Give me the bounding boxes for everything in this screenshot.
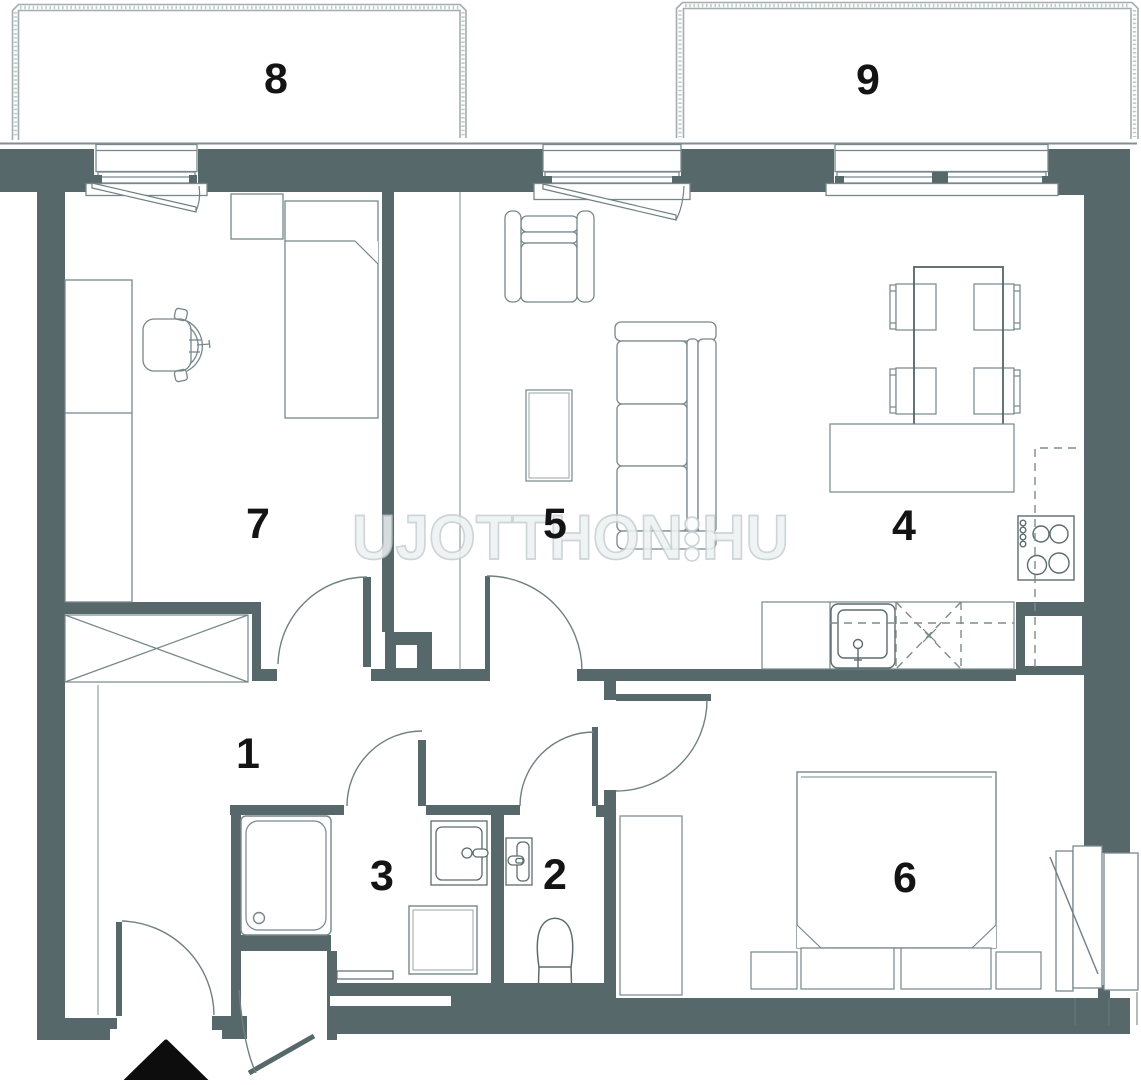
svg-text:6: 6 bbox=[893, 854, 917, 902]
svg-text:8: 8 bbox=[264, 55, 288, 103]
svg-text:9: 9 bbox=[856, 56, 880, 104]
svg-text:UJOTTHON: UJOTTHON bbox=[352, 503, 683, 573]
svg-text:HU: HU bbox=[702, 503, 789, 573]
svg-text:1: 1 bbox=[236, 730, 260, 778]
svg-text:7: 7 bbox=[246, 500, 270, 548]
svg-text:5: 5 bbox=[543, 500, 567, 548]
svg-text:4: 4 bbox=[892, 502, 916, 550]
svg-text:2: 2 bbox=[543, 851, 567, 899]
svg-text:3: 3 bbox=[370, 852, 394, 900]
